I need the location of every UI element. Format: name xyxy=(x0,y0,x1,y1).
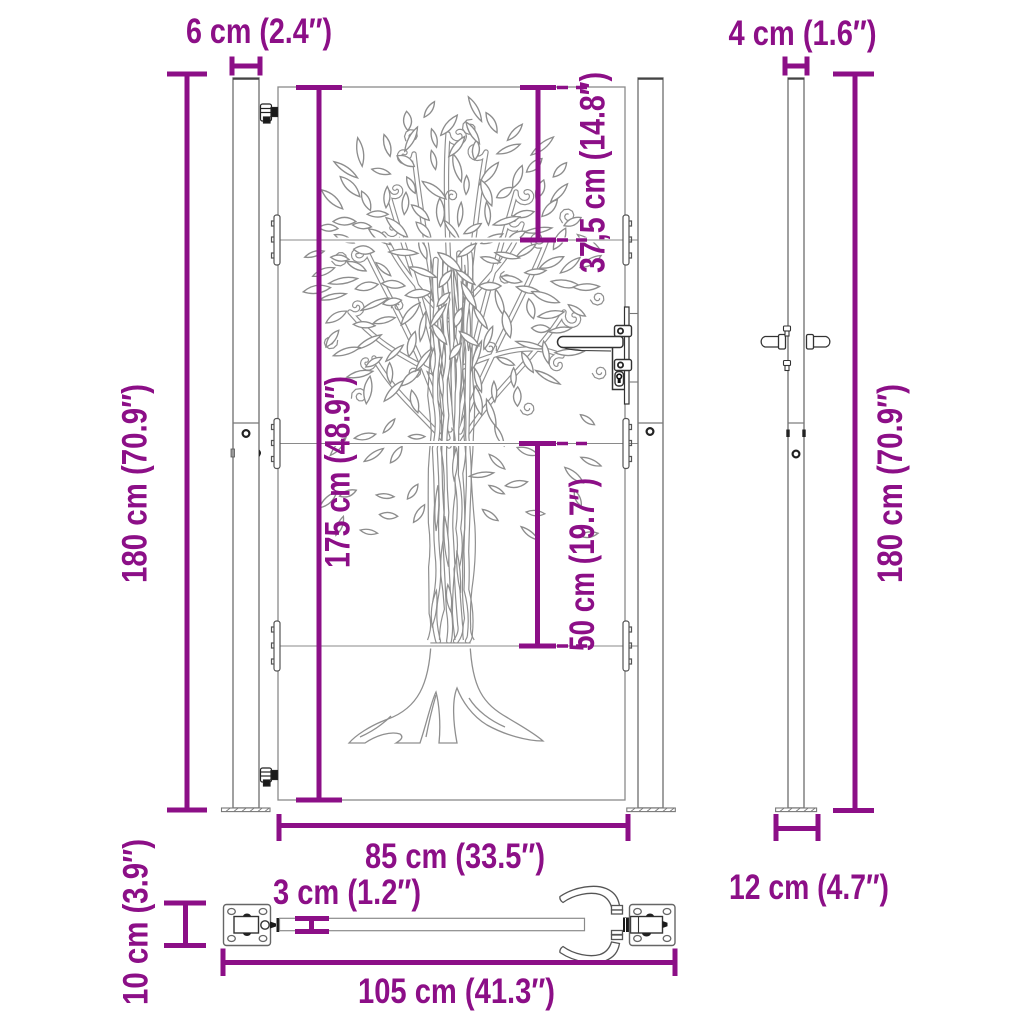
svg-text:37,5 cm (14.8″): 37,5 cm (14.8″) xyxy=(574,72,613,273)
svg-text:180 cm (70.9″): 180 cm (70.9″) xyxy=(116,384,155,583)
svg-text:175 cm (48.9″): 175 cm (48.9″) xyxy=(319,376,358,568)
svg-text:3 cm (1.2″): 3 cm (1.2″) xyxy=(273,873,421,912)
svg-text:180 cm (70.9″): 180 cm (70.9″) xyxy=(871,384,910,583)
svg-text:6 cm (2.4″): 6 cm (2.4″) xyxy=(186,12,332,51)
svg-text:12 cm (4.7″): 12 cm (4.7″) xyxy=(729,868,889,907)
svg-text:85 cm (33.5″): 85 cm (33.5″) xyxy=(365,837,545,876)
svg-text:50 cm (19.7″): 50 cm (19.7″) xyxy=(563,478,602,651)
svg-text:105 cm (41.3″): 105 cm (41.3″) xyxy=(358,972,555,1011)
svg-text:4 cm (1.6″): 4 cm (1.6″) xyxy=(729,14,877,53)
svg-text:10 cm (3.9″): 10 cm (3.9″) xyxy=(117,839,156,1005)
